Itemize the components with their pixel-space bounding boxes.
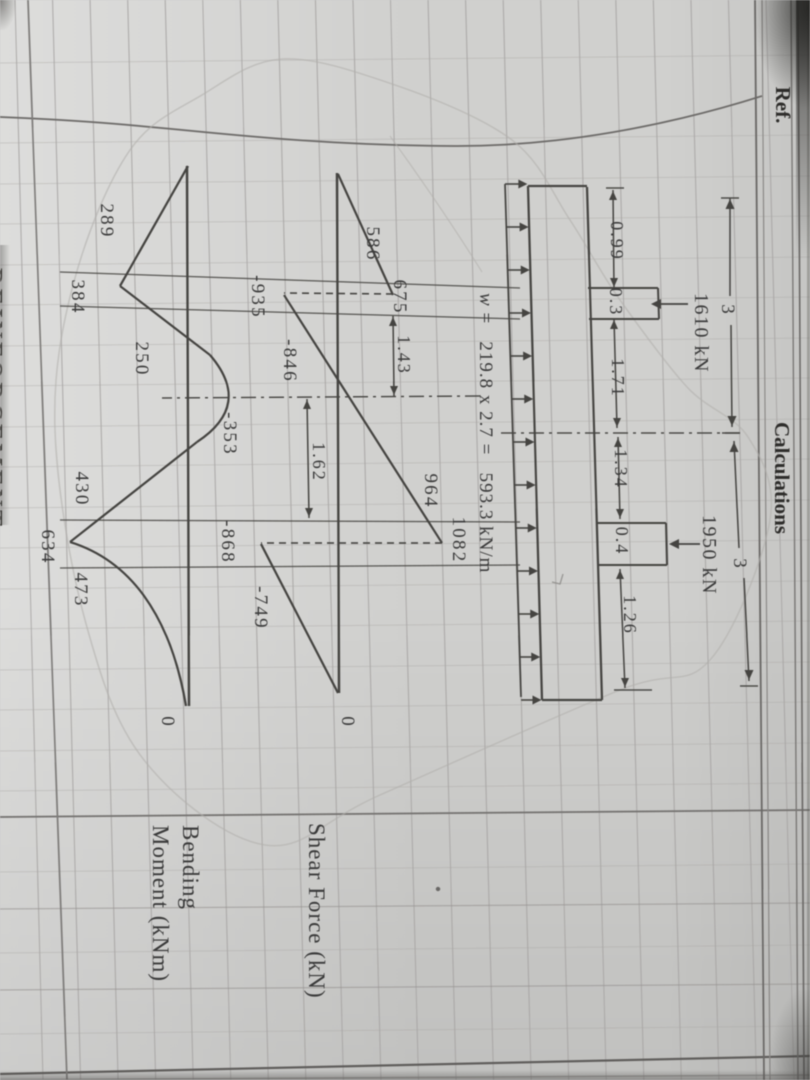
- svg-text:0.4: 0.4: [612, 527, 632, 556]
- svg-text:-749: -749: [250, 586, 271, 630]
- svg-text:1610 kN: 1610 kN: [690, 293, 712, 373]
- svg-text:1082: 1082: [448, 517, 469, 564]
- svg-text:Shear Force (kN): Shear Force (kN): [304, 823, 329, 999]
- svg-text:1950 kN: 1950 kN: [698, 515, 720, 595]
- svg-text:3: 3: [717, 304, 738, 314]
- svg-text:-353: -353: [219, 412, 240, 456]
- svg-text:w = 219.8 x 2.7 = 593.3 kN: w = 219.8 x 2.7 = 593.3 kN/m: [475, 293, 496, 573]
- svg-text:1.62: 1.62: [309, 442, 329, 482]
- svg-text:1.43: 1.43: [394, 335, 414, 375]
- svg-text:-935: -935: [247, 275, 268, 319]
- svg-text:473: 473: [70, 572, 91, 607]
- svg-text:634: 634: [37, 529, 58, 564]
- svg-text:430: 430: [71, 471, 92, 506]
- svg-text:289: 289: [96, 203, 117, 238]
- svg-text:586: 586: [362, 226, 383, 261]
- svg-text:964: 964: [420, 473, 441, 508]
- svg-text:3: 3: [729, 558, 750, 568]
- svg-text:Moment (kNm): Moment (kNm): [148, 825, 173, 982]
- svg-text:675: 675: [389, 279, 410, 314]
- svg-text:-868: -868: [217, 520, 238, 564]
- svg-text:1.71: 1.71: [608, 358, 628, 398]
- svg-text:0: 0: [337, 716, 358, 726]
- svg-text:Calculations: Calculations: [770, 422, 794, 534]
- svg-text:250: 250: [131, 341, 152, 376]
- svg-text:0.3: 0.3: [606, 288, 626, 317]
- svg-text:1.26: 1.26: [620, 595, 640, 635]
- svg-text:0: 0: [157, 716, 178, 726]
- svg-text:384: 384: [67, 279, 88, 314]
- svg-text:Bending: Bending: [178, 825, 203, 910]
- svg-text:1.34: 1.34: [611, 449, 631, 489]
- svg-text:0.99: 0.99: [607, 221, 627, 261]
- svg-text:-846: -846: [279, 339, 300, 383]
